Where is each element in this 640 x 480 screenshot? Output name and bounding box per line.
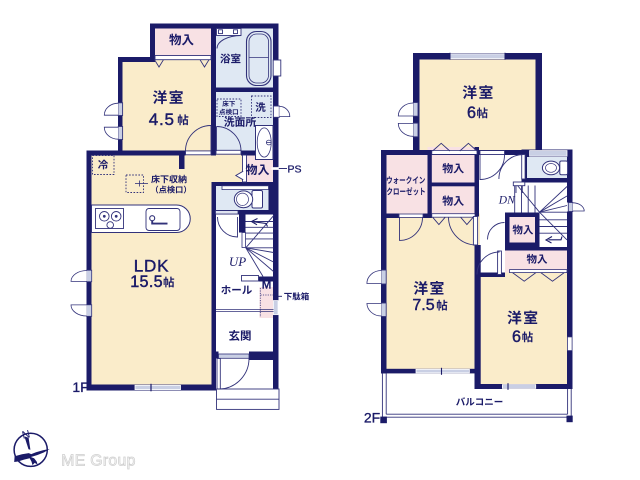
svg-text:4.5: 4.5 — [149, 110, 175, 129]
svg-text:DN: DN — [498, 195, 516, 207]
svg-text:15.5: 15.5 — [130, 273, 163, 291]
svg-text:6: 6 — [467, 104, 476, 122]
svg-text:2F: 2F — [364, 410, 380, 426]
svg-text:1F: 1F — [72, 379, 88, 395]
svg-text:6: 6 — [512, 328, 521, 346]
svg-text:ME Group: ME Group — [61, 453, 135, 470]
svg-text:M: M — [262, 279, 272, 291]
svg-text:UP: UP — [229, 254, 246, 269]
svg-text:PS: PS — [287, 163, 301, 175]
svg-text:7.5: 7.5 — [412, 297, 434, 314]
